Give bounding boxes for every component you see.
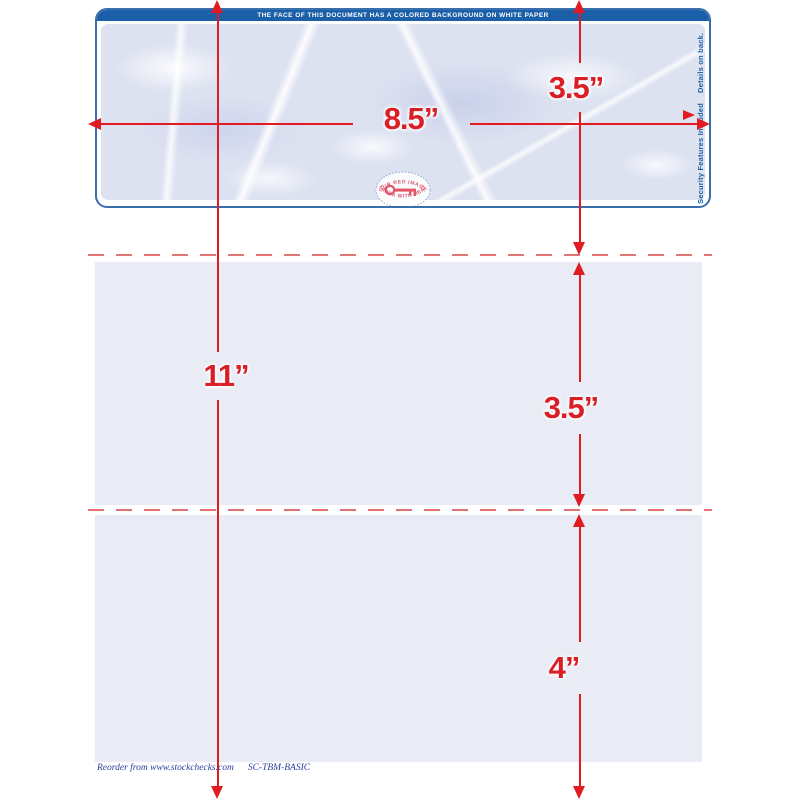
- header-text: THE FACE OF THIS DOCUMENT HAS A COLORED …: [257, 12, 549, 19]
- check-layout-diagram: THE FACE OF THIS DOCUMENT HAS A COLORED …: [0, 0, 800, 800]
- dim-arrow-down: [573, 242, 585, 255]
- dim-middle-section-label: 3.5”: [528, 390, 614, 426]
- dim-line-segment: [101, 123, 353, 125]
- dim-line-segment: [217, 400, 219, 787]
- dim-line-segment: [579, 694, 581, 786]
- dim-arrow-right: [697, 118, 710, 130]
- dim-top-section-label: 3.5”: [533, 70, 619, 106]
- dim-width-label: 8.5”: [353, 101, 469, 137]
- middle-stub-panel: [95, 262, 702, 505]
- dim-height-label: 11”: [190, 358, 262, 394]
- dim-bottom-section-label: 4”: [524, 650, 604, 686]
- product-code: SC-TBM-BASIC: [248, 763, 310, 773]
- heat-sensitive-key-seal: OUR RED IMAGE FADES WITH HEAT: [372, 168, 434, 208]
- dim-line-segment: [579, 526, 581, 642]
- perforation-line-bottom: [88, 509, 712, 511]
- dim-arrow-down: [573, 786, 585, 799]
- perforation-line-top: [88, 254, 712, 256]
- dim-line-segment: [217, 11, 219, 352]
- check-header-bar: THE FACE OF THIS DOCUMENT HAS A COLORED …: [97, 10, 709, 21]
- dim-line-segment: [579, 11, 581, 63]
- dim-arrow-left: [88, 118, 101, 130]
- reorder-note: Reorder from www.stockchecks.comSC-TBM-B…: [97, 763, 310, 773]
- dim-arrow-down: [211, 786, 223, 799]
- dim-arrow-down: [573, 494, 585, 507]
- reorder-text: Reorder from www.stockchecks.com: [97, 763, 234, 773]
- security-pointer-arrow: [683, 110, 695, 120]
- dim-line-segment: [579, 274, 581, 382]
- dim-line-segment: [579, 434, 581, 495]
- dim-line-segment: [470, 123, 698, 125]
- bottom-stub-panel: [95, 515, 702, 762]
- security-note-right: Details on back.: [696, 33, 705, 93]
- dim-line-segment: [579, 112, 581, 243]
